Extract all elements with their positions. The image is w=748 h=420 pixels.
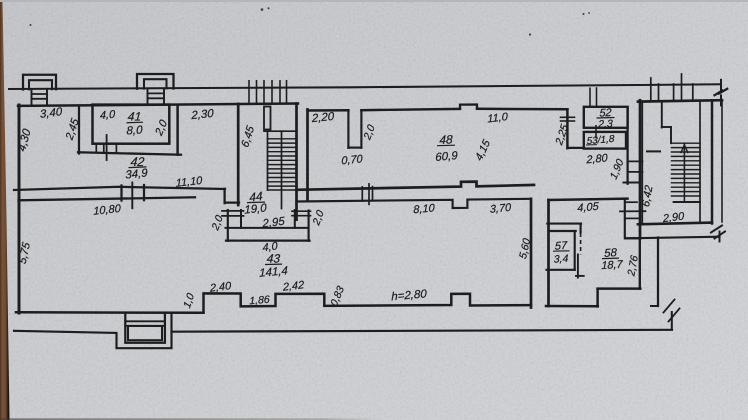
svg-text:8,0: 8,0 xyxy=(127,124,144,137)
svg-text:141,4: 141,4 xyxy=(259,265,288,280)
svg-text:2,80: 2,80 xyxy=(585,152,609,166)
svg-text:2,20: 2,20 xyxy=(311,111,335,126)
svg-text:8,10: 8,10 xyxy=(413,202,435,216)
svg-text:2,30: 2,30 xyxy=(190,108,214,123)
svg-text:18,7: 18,7 xyxy=(601,259,623,273)
svg-text:41: 41 xyxy=(127,110,141,124)
svg-text:4,0: 4,0 xyxy=(100,109,116,122)
svg-text:34,9: 34,9 xyxy=(125,167,148,181)
svg-text:3,70: 3,70 xyxy=(490,202,513,216)
svg-text:0,70: 0,70 xyxy=(341,153,364,167)
svg-text:60,9: 60,9 xyxy=(435,150,458,164)
svg-text:1,86: 1,86 xyxy=(249,294,270,308)
svg-text:2,3: 2,3 xyxy=(597,118,613,131)
svg-text:3,4: 3,4 xyxy=(554,253,569,266)
svg-text:19,0: 19,0 xyxy=(244,202,267,216)
svg-text:4,05: 4,05 xyxy=(577,201,599,215)
